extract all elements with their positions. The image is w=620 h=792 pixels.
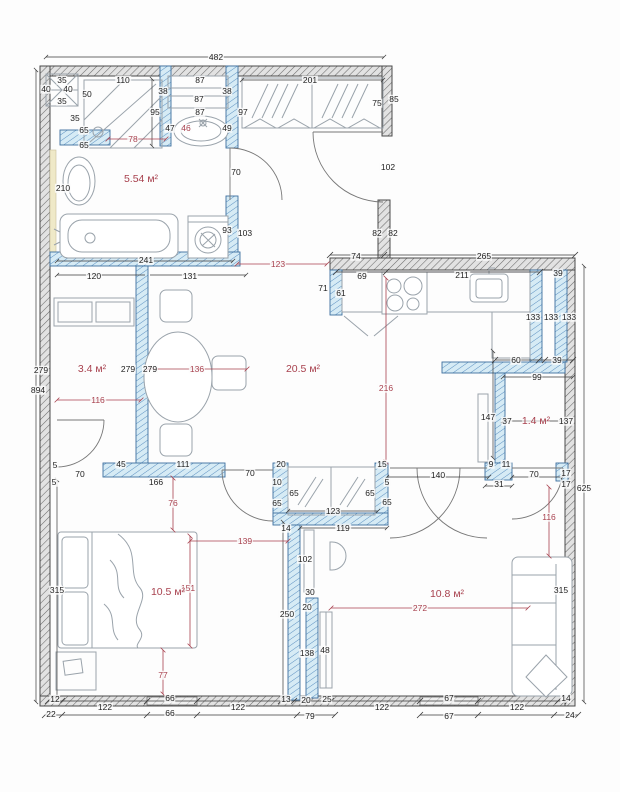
shelf-icons bbox=[46, 74, 228, 108]
wall-pillar bbox=[485, 463, 512, 480]
bedroom-door-arc bbox=[222, 470, 273, 521]
mirror-wardrobe-icon bbox=[288, 467, 375, 515]
wall-closet-left-stub bbox=[273, 463, 288, 517]
nightstand-icon bbox=[56, 652, 96, 690]
wall-accent-strip bbox=[50, 150, 56, 262]
console-table-icon bbox=[304, 530, 346, 592]
wall-shaft-right bbox=[555, 270, 567, 362]
dining-chair-icon bbox=[212, 356, 246, 390]
toilet-icon bbox=[63, 157, 95, 205]
bathtub-icon bbox=[54, 214, 178, 258]
wall-pantry-left bbox=[495, 373, 505, 463]
duct-closet-icon bbox=[320, 612, 332, 688]
living-room-right-door-arc bbox=[512, 468, 563, 519]
desk-icon bbox=[54, 298, 134, 326]
bed-icon bbox=[58, 532, 197, 648]
dining-chair-icon bbox=[160, 290, 192, 322]
wall-closet-right-stub bbox=[375, 463, 388, 517]
dining-chair-icon bbox=[160, 424, 192, 456]
sliding-door-icon bbox=[478, 394, 488, 462]
wall-bedroom-top bbox=[103, 463, 225, 477]
sofa-icon bbox=[512, 557, 572, 697]
washing-machine-icon bbox=[188, 216, 228, 258]
wall-pantry-top bbox=[442, 362, 565, 373]
wall-shaft-left bbox=[530, 270, 542, 363]
bathroom-sink-icon bbox=[174, 116, 228, 146]
wall-entry-stub bbox=[378, 200, 390, 260]
bathroom-door-arc bbox=[230, 148, 282, 200]
wall-duct bbox=[306, 598, 318, 698]
dining-table-icon bbox=[144, 332, 212, 422]
wall-kitchen-return bbox=[330, 270, 342, 315]
wall-top bbox=[40, 66, 392, 76]
wardrobe-room-door-arc bbox=[57, 420, 104, 467]
stove-icon bbox=[382, 272, 427, 314]
floorplan-canvas bbox=[0, 0, 620, 792]
floor-plan: 4823511087404038385087359587973520175856… bbox=[0, 0, 620, 792]
wall-bedroom-right bbox=[288, 525, 300, 700]
entry-door-arc bbox=[313, 132, 383, 202]
kitchen-sink-icon bbox=[470, 268, 508, 302]
living-room-double-door-arcs bbox=[390, 468, 487, 538]
hall-wardrobe-icon bbox=[242, 78, 383, 128]
wall-left bbox=[40, 66, 50, 706]
wall-kitchen-top bbox=[330, 258, 575, 270]
